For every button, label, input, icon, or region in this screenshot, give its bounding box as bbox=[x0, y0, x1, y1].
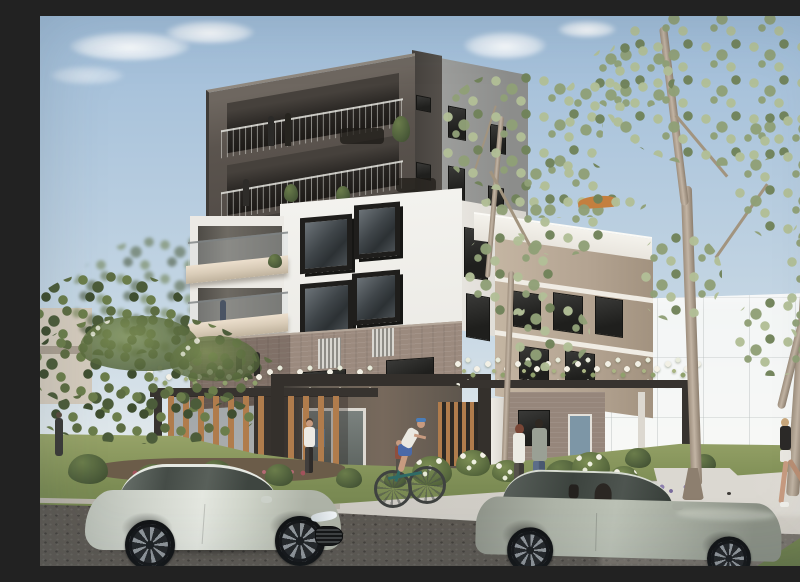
balcony-plant bbox=[392, 116, 410, 142]
couple-man-head bbox=[535, 419, 543, 428]
flowering-tree bbox=[170, 336, 260, 381]
side-mirror bbox=[672, 503, 683, 510]
balcony-plant bbox=[268, 254, 282, 268]
balcony-plant bbox=[284, 184, 298, 202]
balcony-resident bbox=[285, 113, 291, 146]
cloud bbox=[464, 32, 546, 58]
balcony-furniture bbox=[340, 128, 384, 144]
couple-woman-torso bbox=[513, 433, 525, 463]
jogger-one-shoe bbox=[780, 502, 789, 507]
bush bbox=[625, 448, 651, 468]
cloud bbox=[558, 21, 616, 37]
side-mirror bbox=[261, 496, 272, 503]
window bbox=[595, 296, 623, 338]
walking-woman-head bbox=[306, 420, 313, 427]
balcony-resident bbox=[268, 116, 274, 146]
jogger-two bbox=[795, 414, 800, 536]
cyclist bbox=[372, 418, 440, 510]
hedge-row bbox=[40, 388, 255, 444]
box-window bbox=[352, 270, 400, 326]
jogger-one-top bbox=[780, 426, 791, 450]
louvre-screen bbox=[372, 328, 394, 358]
architectural-render bbox=[40, 16, 800, 566]
cloud bbox=[50, 66, 124, 84]
grey-sedan bbox=[475, 468, 789, 566]
box-window bbox=[354, 202, 400, 260]
headrest bbox=[569, 484, 579, 498]
window bbox=[416, 95, 431, 113]
cloud bbox=[166, 21, 254, 43]
couple-man-torso bbox=[532, 428, 547, 461]
jogger-one-leg bbox=[778, 461, 788, 503]
grille bbox=[315, 526, 343, 546]
pedestrian-body bbox=[55, 418, 63, 456]
car-wheel bbox=[125, 520, 175, 566]
walking-woman-torso bbox=[304, 427, 315, 447]
trellis-beam bbox=[460, 380, 698, 388]
cyclist-cap bbox=[416, 418, 426, 422]
box-window bbox=[300, 214, 352, 275]
pedestrian-left bbox=[54, 412, 64, 458]
balcony-resident bbox=[243, 179, 249, 206]
silver-sedan bbox=[85, 464, 345, 564]
